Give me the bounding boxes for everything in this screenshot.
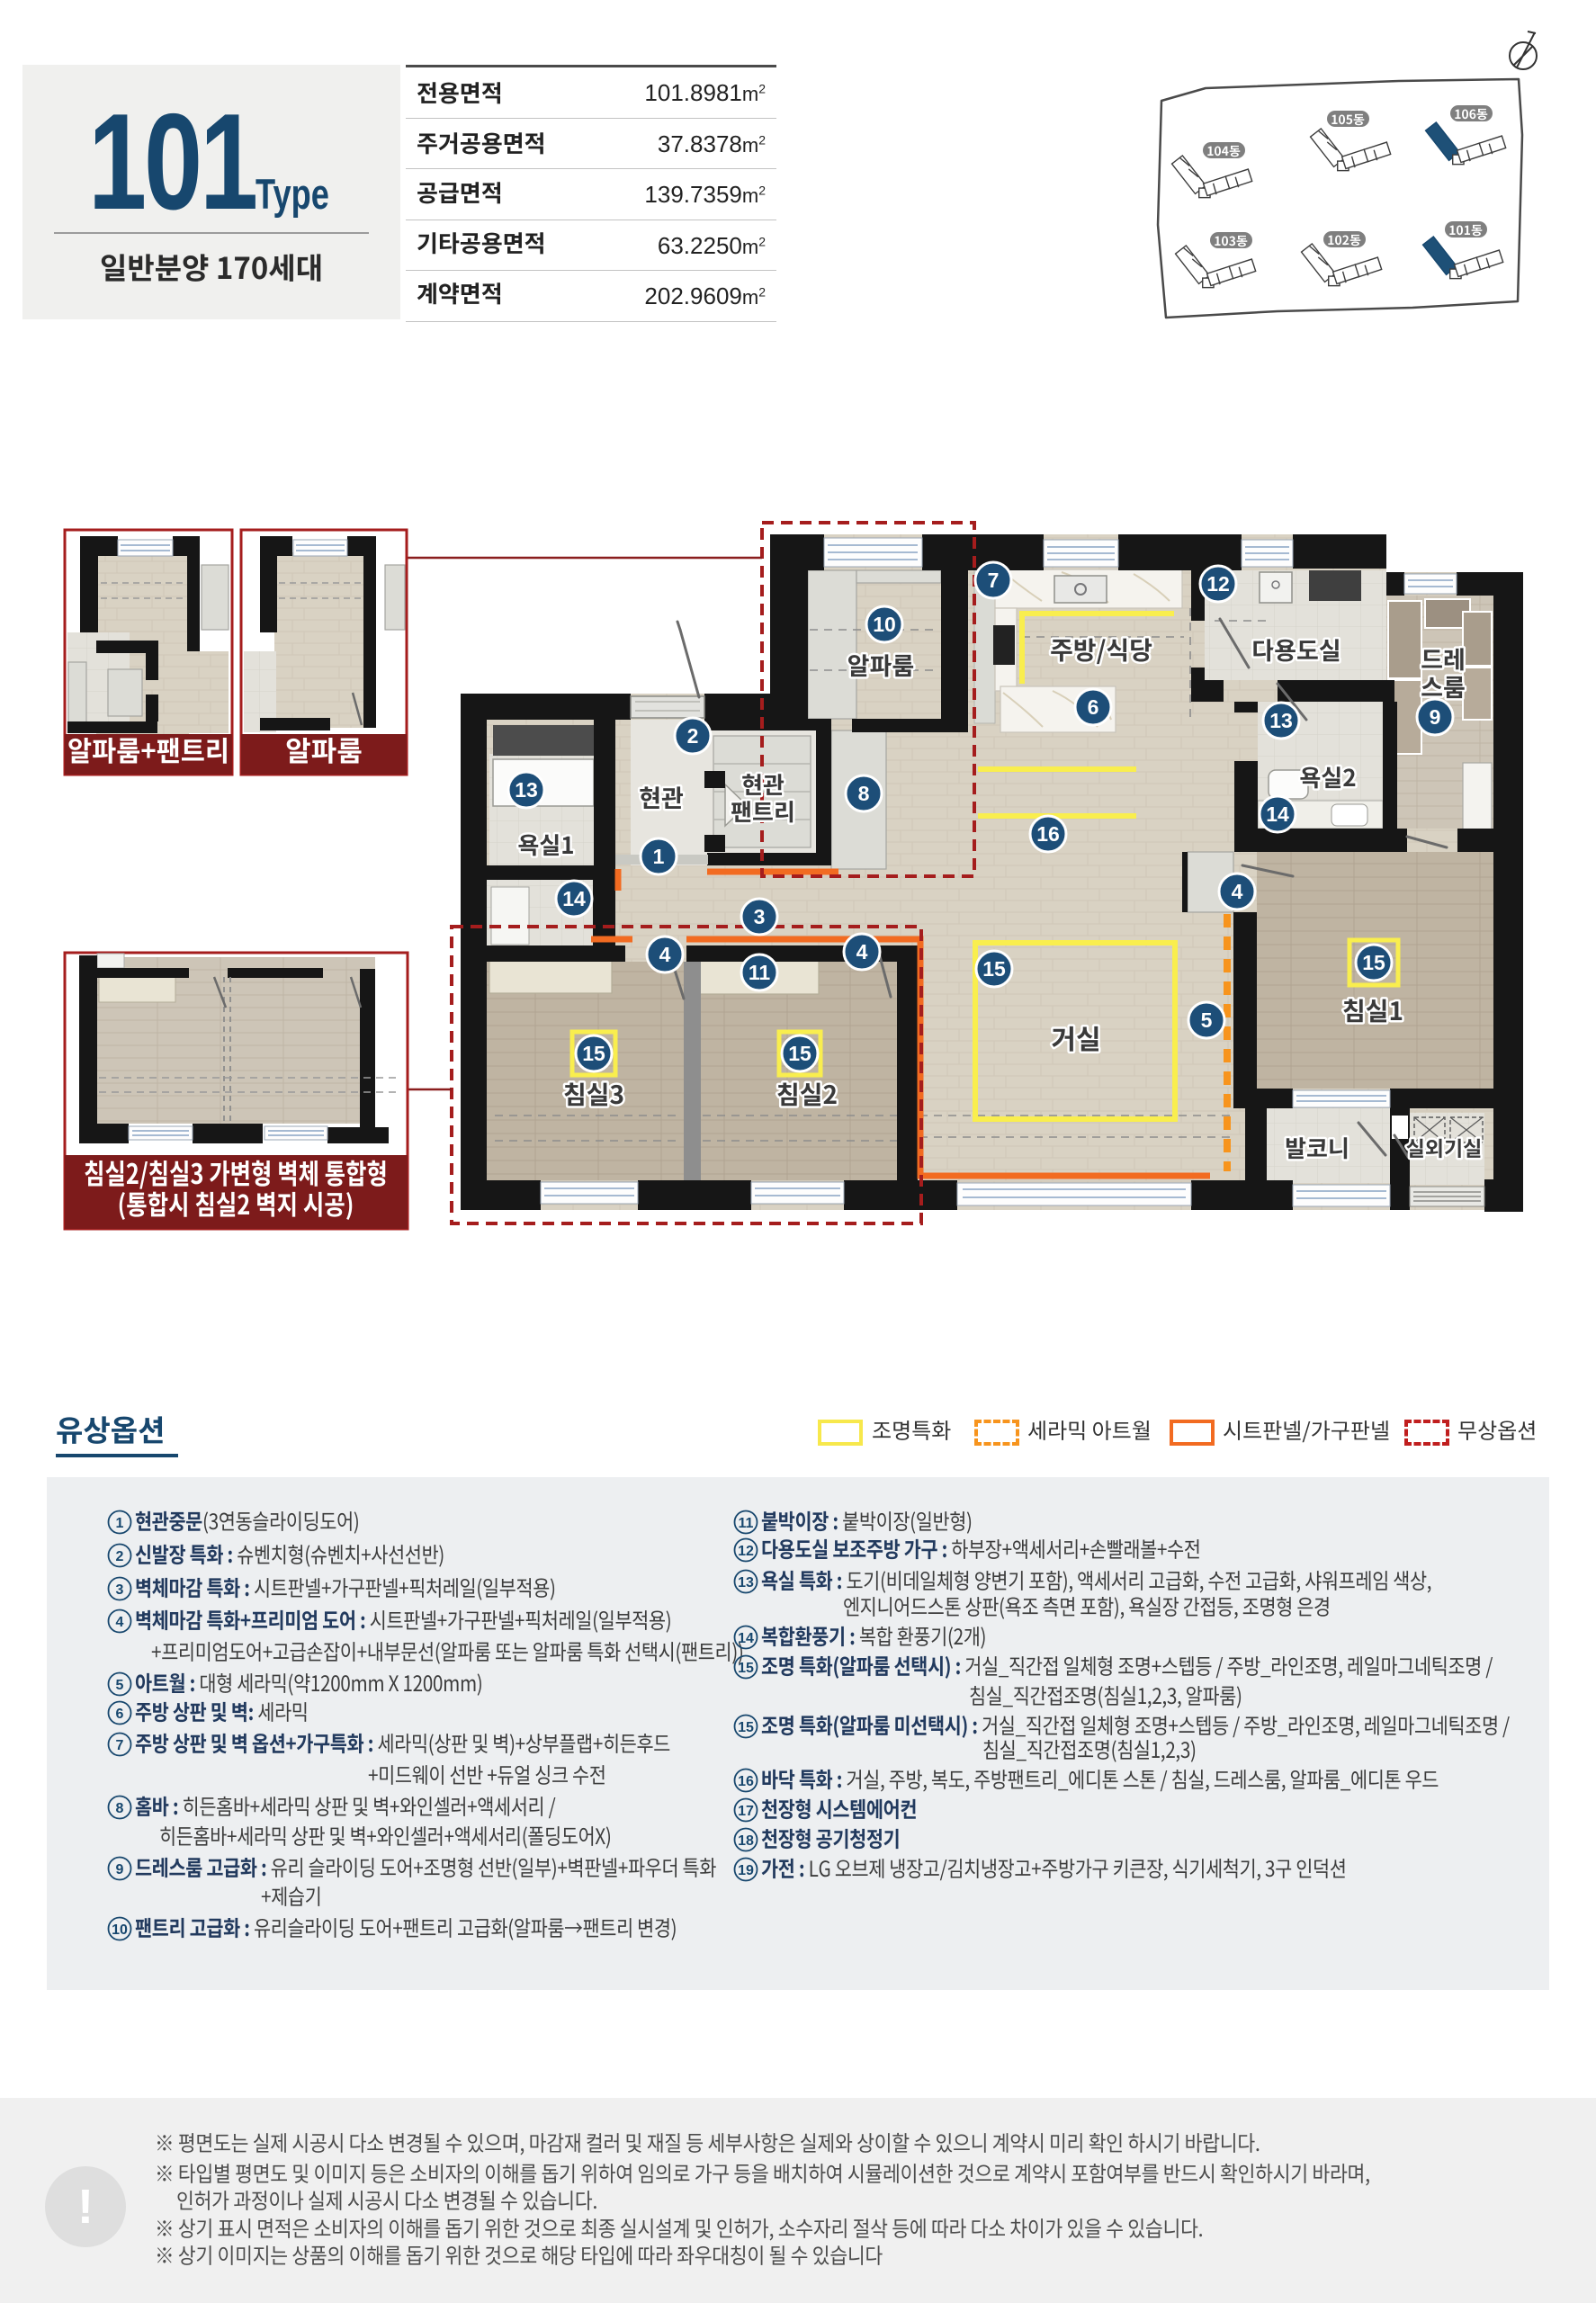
- svg-text:11: 11: [739, 1516, 754, 1531]
- svg-text:9: 9: [116, 1862, 124, 1877]
- svg-text:17: 17: [738, 1804, 754, 1819]
- svg-text:4: 4: [116, 1615, 124, 1630]
- svg-text:6: 6: [116, 1707, 124, 1722]
- svg-text:16: 16: [738, 1774, 754, 1789]
- svg-text:14: 14: [738, 1631, 754, 1646]
- svg-text:10: 10: [112, 1922, 128, 1938]
- svg-text:19: 19: [738, 1863, 754, 1878]
- svg-text:8: 8: [116, 1801, 124, 1816]
- svg-text:5: 5: [116, 1678, 124, 1693]
- svg-text:15: 15: [738, 1720, 754, 1735]
- svg-text:3: 3: [116, 1582, 124, 1598]
- svg-text:13: 13: [738, 1575, 754, 1591]
- svg-text:7: 7: [116, 1738, 124, 1753]
- svg-text:18: 18: [738, 1833, 754, 1849]
- svg-text:12: 12: [738, 1544, 754, 1559]
- svg-text:2: 2: [116, 1549, 124, 1564]
- svg-text:1: 1: [116, 1516, 124, 1531]
- svg-text:15: 15: [738, 1661, 754, 1676]
